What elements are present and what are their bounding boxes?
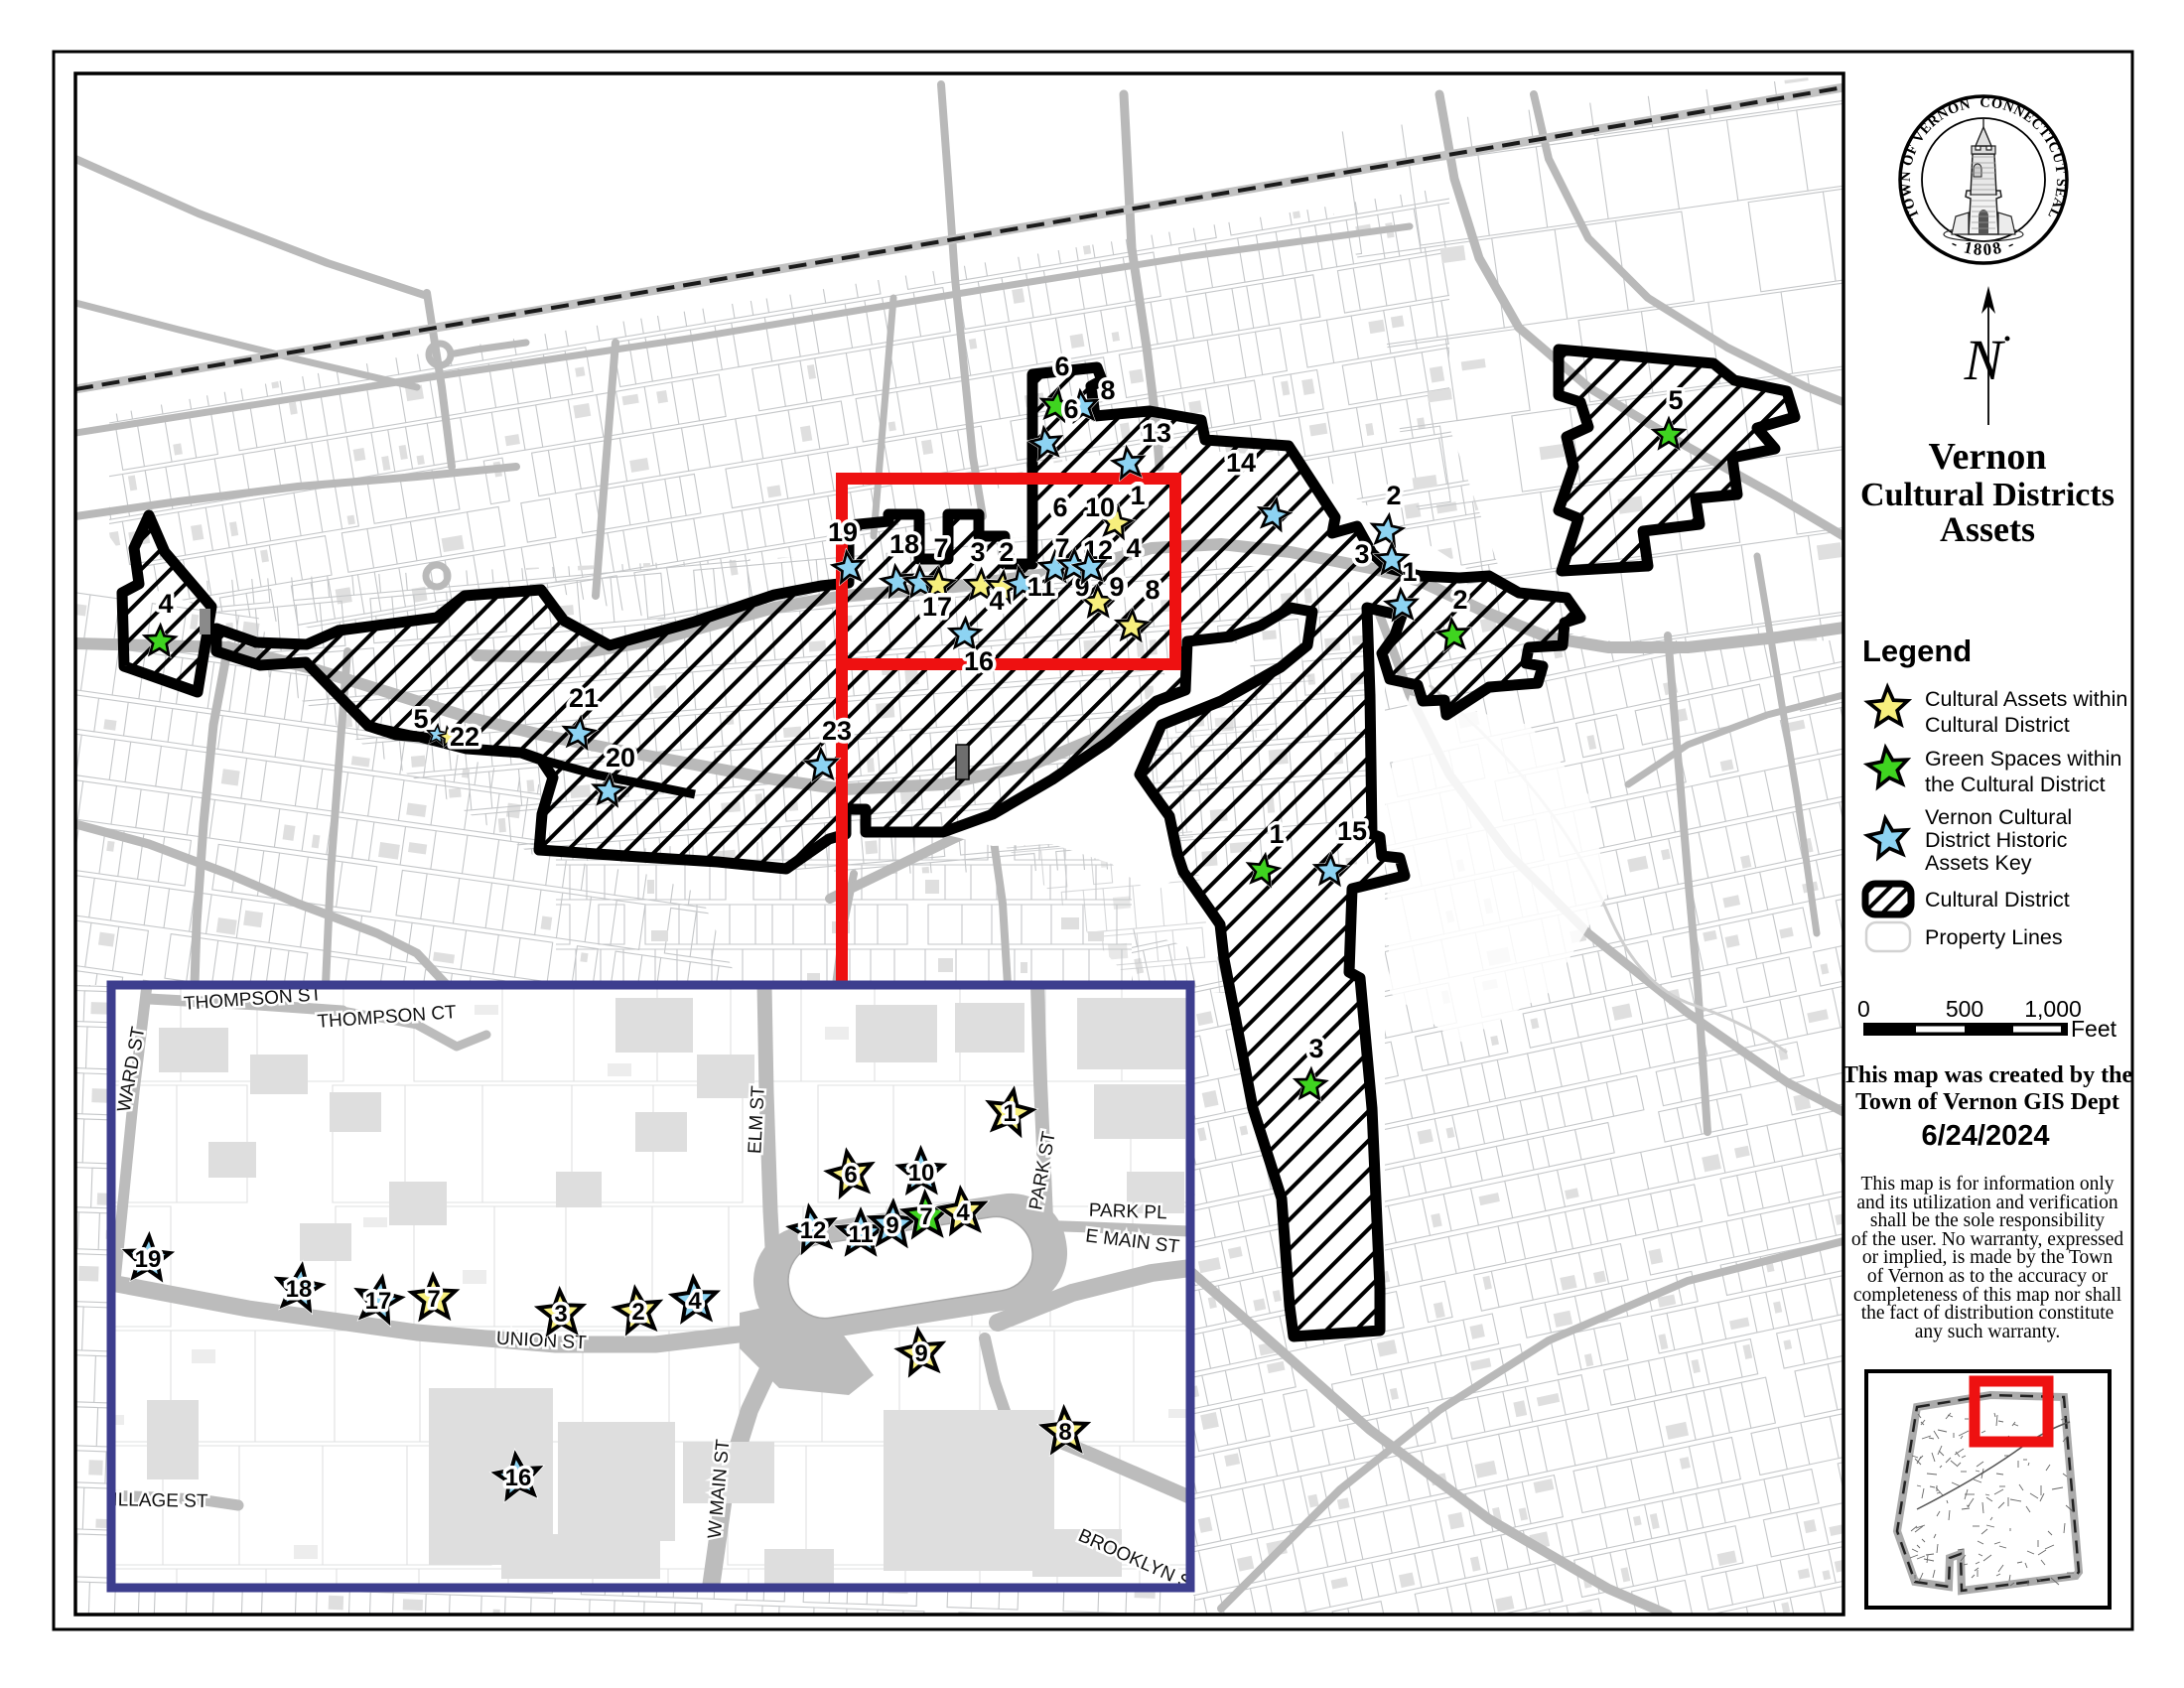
svg-text:23: 23 xyxy=(822,716,852,746)
svg-text:6: 6 xyxy=(844,1162,857,1189)
svg-text:4: 4 xyxy=(688,1288,702,1315)
svg-text:6: 6 xyxy=(1054,352,1069,381)
svg-text:6: 6 xyxy=(1052,492,1067,522)
svg-text:3: 3 xyxy=(1354,539,1369,569)
svg-text:any such warranty.: any such warranty. xyxy=(1915,1322,2061,1342)
svg-text:ELM ST: ELM ST xyxy=(745,1085,769,1155)
svg-text:Cultural Districts: Cultural Districts xyxy=(1860,477,2115,513)
svg-text:PARK PL: PARK PL xyxy=(1088,1200,1167,1224)
svg-text:2: 2 xyxy=(631,1299,644,1326)
svg-text:3: 3 xyxy=(970,537,985,567)
svg-text:of Vernon as to the accuracy o: of Vernon as to the accuracy or xyxy=(1867,1266,2109,1287)
svg-text:9: 9 xyxy=(886,1212,898,1239)
svg-text:Feet: Feet xyxy=(2071,1016,2117,1042)
svg-text:or implied, is made by the Tow: or implied, is made by the Town xyxy=(1862,1247,2114,1268)
svg-text:2: 2 xyxy=(1452,585,1467,615)
svg-text:shall be the sole responsibili: shall be the sole responsibility xyxy=(1870,1210,2105,1231)
svg-text:1: 1 xyxy=(1130,481,1145,510)
svg-text:20: 20 xyxy=(606,743,635,773)
svg-text:8: 8 xyxy=(1145,575,1160,605)
svg-text:10: 10 xyxy=(908,1160,935,1187)
svg-text:4: 4 xyxy=(989,586,1004,616)
svg-text:17: 17 xyxy=(365,1288,392,1315)
svg-text:21: 21 xyxy=(569,683,599,713)
svg-text:Green Spaces within: Green Spaces within xyxy=(1925,747,2121,771)
svg-text:7: 7 xyxy=(933,533,948,563)
svg-text:N: N xyxy=(1964,328,2006,392)
svg-text:1: 1 xyxy=(1269,819,1284,849)
svg-text:22: 22 xyxy=(450,722,479,752)
svg-text:the Cultural District: the Cultural District xyxy=(1925,773,2106,796)
svg-text:3: 3 xyxy=(1308,1034,1323,1063)
svg-text:Vernon: Vernon xyxy=(1929,436,2047,478)
svg-text:This map was created by the: This map was created by the xyxy=(1843,1062,2133,1088)
svg-text:Cultural District: Cultural District xyxy=(1925,713,2070,737)
svg-text:VILLAGE ST: VILLAGE ST xyxy=(100,1489,209,1512)
svg-text:Property Lines: Property Lines xyxy=(1925,925,2063,949)
svg-text:16: 16 xyxy=(505,1465,532,1491)
svg-text:District Historic: District Historic xyxy=(1925,828,2068,852)
svg-text:15: 15 xyxy=(1337,816,1367,846)
svg-text:500: 500 xyxy=(1946,996,1983,1022)
svg-text:12: 12 xyxy=(800,1217,827,1244)
svg-text:Assets: Assets xyxy=(1940,509,2035,549)
svg-text:6/24/2024: 6/24/2024 xyxy=(1921,1120,2049,1152)
svg-text:10: 10 xyxy=(1085,492,1115,522)
svg-text:8: 8 xyxy=(1100,375,1115,405)
svg-text:0: 0 xyxy=(1857,996,1870,1022)
svg-text:6: 6 xyxy=(1063,394,1078,424)
svg-text:19: 19 xyxy=(828,517,858,547)
svg-text:14: 14 xyxy=(1226,448,1256,478)
svg-text:18: 18 xyxy=(286,1276,313,1303)
svg-text:16: 16 xyxy=(964,646,994,676)
svg-text:8: 8 xyxy=(1058,1419,1071,1446)
svg-text:18: 18 xyxy=(889,529,919,559)
svg-text:7: 7 xyxy=(919,1203,932,1230)
svg-text:17: 17 xyxy=(922,592,952,622)
svg-text:4: 4 xyxy=(956,1199,970,1226)
svg-text:the fact of distribution const: the fact of distribution constitute xyxy=(1861,1303,2115,1324)
svg-text:7: 7 xyxy=(427,1286,440,1313)
svg-text:Legend: Legend xyxy=(1862,633,1972,668)
svg-text:19: 19 xyxy=(135,1246,162,1273)
svg-text:Vernon Cultural: Vernon Cultural xyxy=(1925,805,2072,829)
svg-text:9: 9 xyxy=(1109,572,1124,602)
svg-text:2: 2 xyxy=(1386,481,1401,510)
svg-text:2: 2 xyxy=(999,537,1014,567)
svg-text:3: 3 xyxy=(554,1301,567,1328)
svg-text:Cultural District: Cultural District xyxy=(1925,888,2070,912)
svg-text:1: 1 xyxy=(1402,557,1417,587)
svg-text:Town of Vernon GIS Dept: Town of Vernon GIS Dept xyxy=(1855,1089,2119,1115)
svg-text:9: 9 xyxy=(914,1340,927,1367)
svg-text:1: 1 xyxy=(1003,1100,1016,1127)
svg-text:This map is for information on: This map is for information only xyxy=(1860,1174,2114,1195)
svg-text:4: 4 xyxy=(158,589,173,619)
svg-text:11: 11 xyxy=(848,1221,873,1248)
svg-text:4: 4 xyxy=(1126,533,1141,563)
svg-text:13: 13 xyxy=(1142,418,1171,448)
svg-text:5: 5 xyxy=(413,704,428,734)
svg-text:Assets Key: Assets Key xyxy=(1925,851,2032,875)
svg-text:5: 5 xyxy=(1668,385,1683,415)
svg-text:Cultural Assets within: Cultural Assets within xyxy=(1925,687,2127,711)
